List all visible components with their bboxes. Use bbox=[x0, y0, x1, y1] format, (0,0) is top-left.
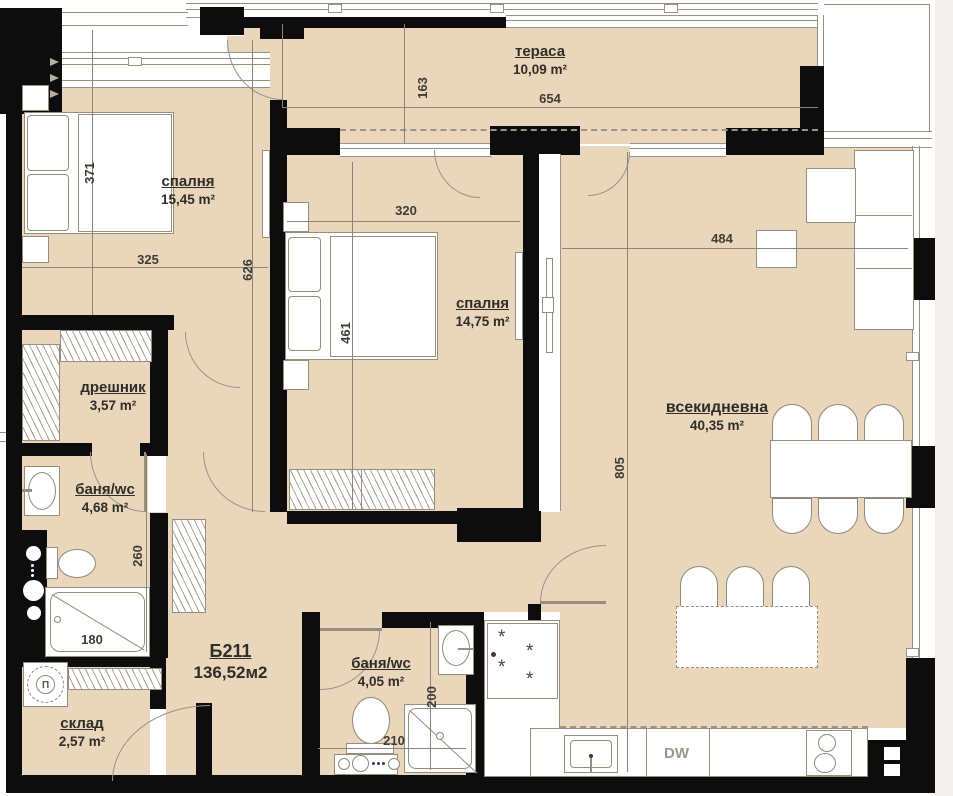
wall-bottomright-block bbox=[868, 740, 936, 793]
pipe-symbol bbox=[23, 580, 44, 601]
radiator bbox=[262, 150, 270, 238]
dim-line bbox=[318, 748, 466, 749]
dim-line bbox=[404, 24, 405, 143]
burner-icon: * bbox=[498, 663, 505, 673]
wall-bath2-left bbox=[302, 612, 320, 775]
dim-bedroom1-height: 371 bbox=[83, 157, 97, 189]
dim-line bbox=[22, 267, 268, 268]
room-name: склад bbox=[28, 714, 136, 733]
door-leaf-entrance bbox=[540, 601, 606, 604]
dim-line bbox=[627, 152, 628, 772]
living-topright-window bbox=[824, 131, 932, 148]
vent-arrow-icon bbox=[50, 58, 59, 66]
dim-bedroom2-width: 320 bbox=[390, 204, 422, 218]
window-tick bbox=[906, 648, 919, 657]
storage-shelf bbox=[68, 668, 162, 690]
washer-dial-icon bbox=[352, 755, 369, 772]
dining-chair bbox=[818, 404, 858, 442]
room-label-storage: склад 2,57 m² bbox=[28, 714, 136, 750]
room-name: баня/wc bbox=[318, 654, 444, 673]
room-area: 4,05 m² bbox=[318, 673, 444, 690]
unit-id: Б211 bbox=[158, 640, 303, 662]
sofa-cushion-line bbox=[856, 268, 912, 269]
washer-dial-icon bbox=[388, 758, 400, 770]
bed1-nightstand bbox=[22, 85, 49, 111]
window-line bbox=[340, 148, 492, 149]
shaft-opening bbox=[884, 747, 900, 760]
room-name: дрешник bbox=[50, 378, 176, 397]
dishwasher-label: DW bbox=[664, 745, 689, 762]
hob-knob-icon bbox=[491, 652, 496, 657]
dim-line bbox=[562, 248, 908, 249]
bed1-pillow bbox=[27, 115, 69, 171]
wall-hall-corner-chunk bbox=[457, 508, 541, 542]
roof-line bbox=[62, 12, 188, 13]
dining-chair bbox=[864, 404, 904, 442]
room-area: 14,75 m² bbox=[420, 313, 545, 330]
room-label-living: всекидневна 40,35 m² bbox=[638, 398, 796, 434]
burner-circle-icon bbox=[818, 734, 836, 752]
room-label-bath2: баня/wc 4,05 m² bbox=[318, 654, 444, 690]
bar-table bbox=[676, 606, 818, 668]
parapet-line bbox=[817, 15, 818, 67]
wall-bedroom2-living bbox=[523, 154, 539, 511]
unit-label: Б211 136,52м2 bbox=[158, 640, 303, 684]
dim-terrace-height: 163 bbox=[416, 72, 430, 104]
vent-arrow-icon bbox=[50, 74, 59, 82]
dim-line bbox=[282, 24, 283, 108]
sofa-chaise bbox=[806, 168, 856, 223]
wall-terrace-top bbox=[244, 17, 506, 28]
room-area: 2,57 m² bbox=[28, 733, 136, 750]
dining-table bbox=[770, 440, 912, 498]
pipe-symbol bbox=[27, 606, 41, 620]
pipe-dot bbox=[31, 564, 34, 567]
vent-arrow-icon bbox=[50, 90, 59, 98]
room-name: всекидневна bbox=[638, 398, 796, 417]
terrace-parapet bbox=[506, 15, 818, 28]
bath1-tap-icon bbox=[22, 489, 32, 492]
dim-line bbox=[282, 107, 818, 108]
wall-closet-bath-divider bbox=[6, 443, 92, 456]
wall-terrace-bottom-chunk1 bbox=[273, 128, 340, 155]
dim-hall-height: 626 bbox=[241, 254, 255, 286]
dim-terrace-width: 654 bbox=[534, 92, 566, 106]
wall-bedroom2-bottom bbox=[287, 511, 459, 524]
room-label-bedroom1: спалня 15,45 m² bbox=[128, 172, 248, 208]
room-name: спалня bbox=[420, 294, 545, 313]
dim-line bbox=[287, 221, 520, 222]
burner-icon: * bbox=[526, 675, 533, 685]
washer-dot bbox=[382, 762, 385, 765]
room-label-bath1: баня/wc 4,68 m² bbox=[44, 480, 166, 516]
burner-circle-icon bbox=[814, 753, 836, 773]
bar-stool bbox=[772, 566, 810, 608]
living-terrace-window bbox=[630, 143, 726, 157]
page-gutter bbox=[935, 0, 953, 796]
room-area: 3,57 m² bbox=[50, 397, 176, 414]
hall-wardrobe bbox=[172, 519, 206, 613]
bath1-toilet-tank bbox=[46, 547, 58, 579]
pipe-dot bbox=[31, 574, 34, 577]
shaft-opening bbox=[884, 764, 900, 776]
closet-shelf-top bbox=[60, 330, 152, 362]
door-leaf-bath2 bbox=[320, 628, 382, 631]
bed2-nightstand bbox=[283, 360, 309, 390]
room-label-bedroom2: спалня 14,75 m² bbox=[420, 294, 545, 330]
window-tick bbox=[328, 4, 342, 13]
room-area: 4,68 m² bbox=[44, 499, 166, 516]
parapet-line bbox=[823, 15, 824, 67]
dim-bath2-width: 210 bbox=[378, 734, 410, 748]
room-name: спалня bbox=[128, 172, 248, 191]
dim-bedroom1-width: 325 bbox=[132, 253, 164, 267]
unit-area: 136,52м2 bbox=[158, 662, 303, 684]
bath2-tap-icon bbox=[458, 648, 474, 650]
side-table bbox=[756, 230, 797, 268]
dim-bathtub-width: 180 bbox=[76, 633, 108, 647]
room-name: баня/wc bbox=[44, 480, 166, 499]
window-line bbox=[824, 138, 932, 139]
wall-terrace-right-column bbox=[800, 66, 824, 136]
sofa-cushion-line bbox=[856, 215, 912, 216]
burner-icon: * bbox=[498, 633, 505, 643]
pipe-dot bbox=[31, 569, 34, 572]
bath1-toilet-bowl bbox=[58, 549, 96, 578]
right-window-line bbox=[919, 146, 920, 738]
sofa-main bbox=[854, 150, 914, 330]
room-area: 10,09 m² bbox=[470, 61, 610, 78]
room-name: тераса bbox=[470, 42, 610, 61]
wardrobe-divider bbox=[361, 470, 362, 509]
washer-dot bbox=[372, 762, 375, 765]
washing-machine-label: П bbox=[42, 680, 49, 691]
dim-living-width: 484 bbox=[706, 232, 738, 246]
pipe-symbol bbox=[26, 546, 41, 561]
wall-terrace-left-column bbox=[200, 7, 244, 35]
bar-stool bbox=[680, 566, 718, 608]
burner-icon: * bbox=[526, 647, 533, 657]
bed1-pillow bbox=[27, 174, 69, 231]
bed2-pillow bbox=[288, 296, 321, 351]
room-label-closet: дрешник 3,57 m² bbox=[50, 378, 176, 414]
room-label-terrace: тераса 10,09 m² bbox=[470, 42, 610, 78]
parapet-line bbox=[506, 20, 818, 21]
outline-line bbox=[824, 4, 930, 5]
floor-plan: * * * * DW П 1 bbox=[0, 0, 953, 796]
window-tick bbox=[490, 4, 504, 13]
bed2-pillow bbox=[288, 237, 321, 292]
window-line bbox=[630, 148, 726, 149]
window-tick bbox=[664, 4, 678, 13]
dim-bath1-height: 260 bbox=[131, 540, 145, 572]
shower-drain-icon bbox=[436, 732, 444, 740]
bar-stool bbox=[726, 566, 764, 608]
wall-bath1-right bbox=[150, 513, 168, 658]
washer-dot bbox=[377, 762, 380, 765]
sink-tap-icon bbox=[590, 758, 592, 772]
bedroom2-wardrobe bbox=[289, 469, 435, 510]
room-area: 15,45 m² bbox=[128, 191, 248, 208]
washer-dial-icon bbox=[338, 758, 350, 770]
window-tick bbox=[128, 57, 142, 66]
wall-living-top-chunk bbox=[726, 128, 824, 155]
bed1-nightstand bbox=[22, 236, 49, 263]
window-tick bbox=[906, 352, 919, 361]
bathtub-drain-icon bbox=[54, 616, 61, 623]
wall-bedroom1-bottom bbox=[6, 315, 174, 330]
overhang-dashed-line bbox=[340, 129, 818, 131]
outline-line bbox=[929, 4, 930, 134]
roof-line bbox=[62, 25, 188, 26]
bed2-nightstand bbox=[283, 202, 309, 232]
dim-bedroom2-height: 461 bbox=[339, 317, 353, 349]
room-area: 40,35 m² bbox=[638, 417, 796, 434]
dim-living-height: 805 bbox=[613, 452, 627, 484]
